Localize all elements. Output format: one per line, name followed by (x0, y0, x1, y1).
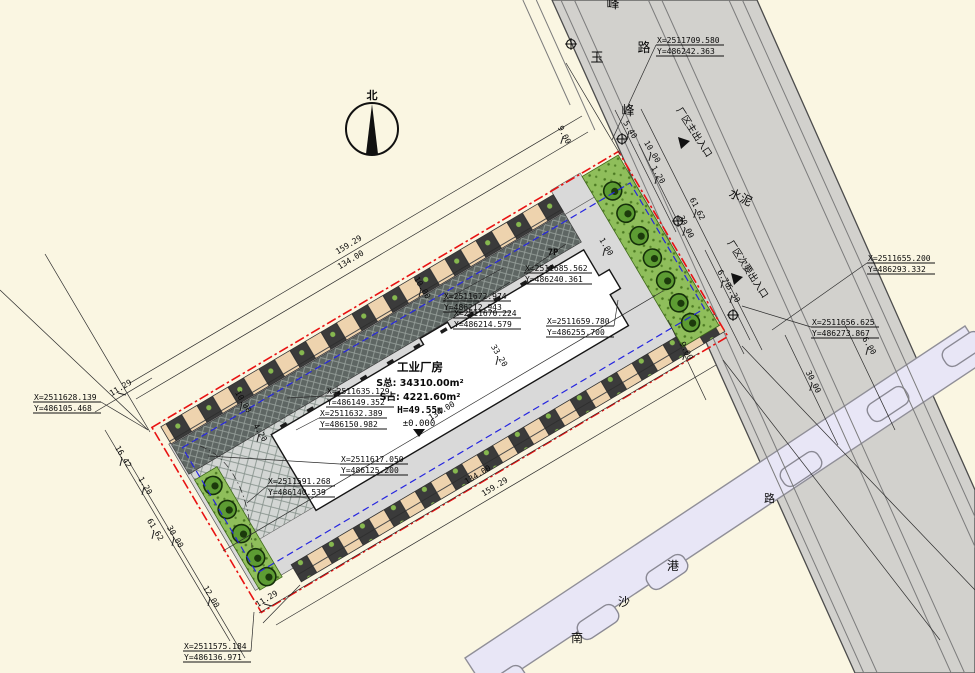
coordinate-x: X=2511685.562 (525, 264, 588, 273)
coordinate-y: Y=486150.982 (320, 420, 378, 429)
coordinate-x: X=2511670.224 (454, 309, 517, 318)
coordinate-x: X=2511659.780 (547, 317, 610, 326)
road-name-char: 路 (637, 40, 650, 56)
coordinate-y: Y=486240.361 (525, 275, 583, 284)
coordinate-x: X=2511632.389 (320, 409, 383, 418)
road-name-char: 峰 (606, 0, 619, 12)
coordinate-x: X=2511672.974 (444, 292, 507, 301)
coordinate-y: Y=486293.332 (868, 265, 926, 274)
coordinate-x: X=2511709.580 (657, 36, 720, 45)
coordinate-y: Y=486149.352 (327, 398, 385, 407)
waterway-name-char: 沙 (618, 595, 630, 609)
road-name-char: 玉 (590, 51, 603, 66)
crossing-road-name: 路 (764, 492, 775, 505)
coordinate-y: Y=486214.579 (454, 320, 512, 329)
coordinate-y: Y=486242.363 (657, 47, 715, 56)
waterway-name-char: 南 (571, 630, 583, 645)
coordinate-y: Y=486273.867 (812, 329, 870, 338)
coordinate-x: X=2511575.184 (184, 642, 247, 651)
coordinate-x: X=2511617.050 (341, 455, 404, 464)
coordinate-x: X=2511635.129 (327, 387, 390, 396)
site-plan-canvas: 北 工业厂房 S总: 34310.00m² S占: 4221.60m² H=49… (0, 0, 975, 673)
coordinate-y: Y=486105.468 (34, 404, 92, 413)
coordinate-y: Y=486140.539 (268, 488, 326, 497)
coordinate-x: X=2511656.625 (812, 318, 875, 327)
coordinate-x: X=2511628.139 (34, 393, 97, 402)
north-label: 北 (367, 88, 378, 102)
building-name: 工业厂房 (397, 360, 443, 374)
coordinate-y: Y=486255.700 (547, 328, 605, 337)
cad-site-plan: 北 工业厂房 S总: 34310.00m² S占: 4221.60m² H=49… (0, 0, 975, 673)
coordinate-y: Y=486136.971 (184, 653, 242, 662)
coordinate-x: X=2511591.268 (268, 477, 331, 486)
coordinate-y: Y=486125.200 (341, 466, 399, 475)
coordinate-x: X=2511655.200 (868, 254, 931, 263)
waterway-name-char: 港 (667, 559, 679, 573)
